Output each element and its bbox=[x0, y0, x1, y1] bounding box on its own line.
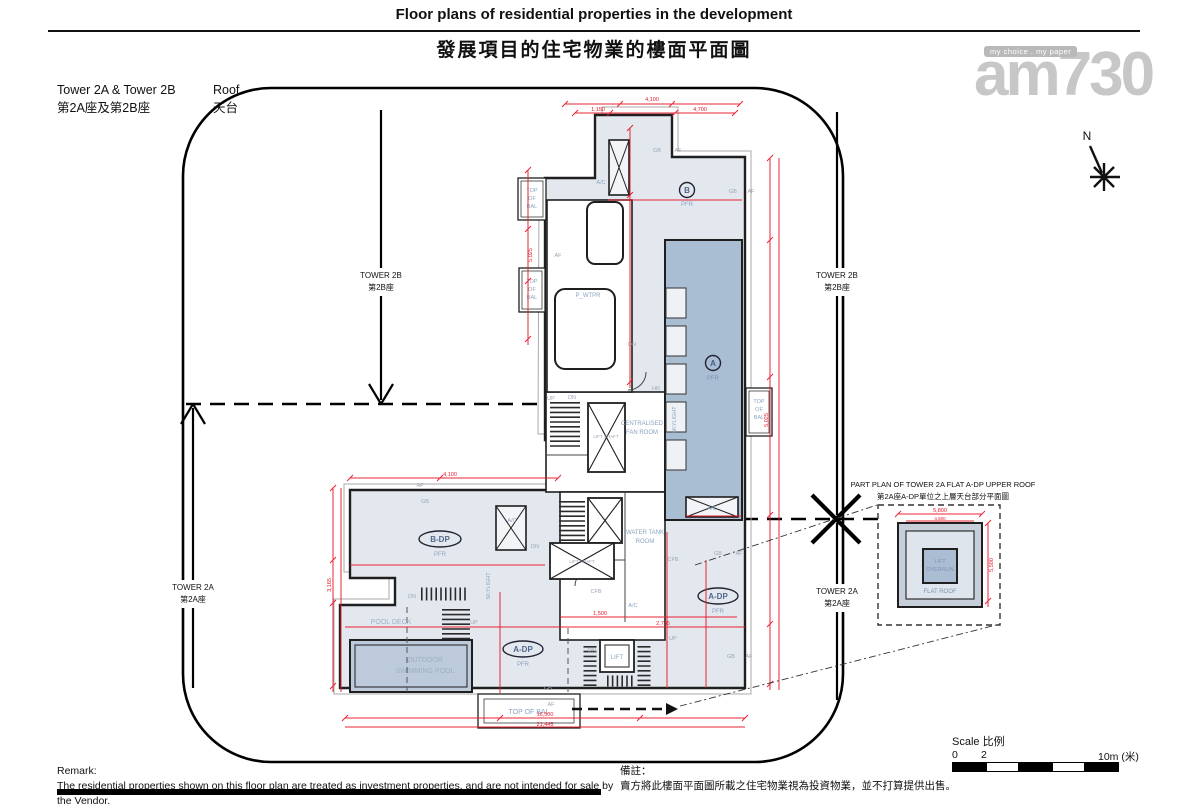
svg-text:AF: AF bbox=[735, 551, 743, 557]
svg-text:5,025: 5,025 bbox=[528, 248, 534, 262]
tower-2b-left-en: TOWER 2B bbox=[360, 271, 402, 280]
remark-en-title: Remark: bbox=[57, 764, 617, 779]
svg-text:OVERRUN: OVERRUN bbox=[926, 567, 954, 573]
svg-text:OF: OF bbox=[755, 407, 763, 413]
svg-text:SKYLIGHT: SKYLIGHT bbox=[672, 406, 678, 434]
svg-text:AF: AF bbox=[416, 483, 424, 489]
tower-2a-right-zh: 第2A座 bbox=[824, 598, 850, 608]
floor-plan-drawing: TOWER 2B 第2B座 TOWER 2B 第2B座 TOWER 2A 第2A… bbox=[0, 0, 1188, 795]
svg-text:DN: DN bbox=[408, 594, 416, 600]
svg-text:SKYLIGHT: SKYLIGHT bbox=[486, 572, 492, 600]
scale-ticks: 0 2 10m (米) bbox=[952, 749, 1152, 762]
svg-text:GB: GB bbox=[727, 654, 735, 660]
svg-text:GB: GB bbox=[421, 499, 429, 505]
svg-text:LIFT SHAFT: LIFT SHAFT bbox=[569, 559, 594, 564]
north-label: N bbox=[1083, 129, 1092, 143]
bottom-black-bar bbox=[57, 789, 601, 795]
svg-text:B-DP: B-DP bbox=[430, 535, 450, 544]
svg-text:P_WTPR: P_WTPR bbox=[575, 293, 601, 299]
svg-text:A-DP: A-DP bbox=[513, 645, 533, 654]
svg-text:CENTRALISED: CENTRALISED bbox=[621, 421, 664, 427]
tower-2a-right-en: TOWER 2A bbox=[816, 587, 858, 596]
tower-2a-left-en: TOWER 2A bbox=[172, 583, 214, 592]
remark-zh: 備註： 賣方將此樓面平面圖所載之住宅物業視為投資物業，並不打算提供出售。 bbox=[620, 764, 1140, 794]
skylight-boxes bbox=[666, 288, 686, 470]
svg-text:WATER TANK: WATER TANK bbox=[626, 530, 664, 536]
svg-text:DN: DN bbox=[568, 395, 576, 401]
svg-text:DN: DN bbox=[628, 342, 636, 348]
svg-text:OF: OF bbox=[528, 287, 536, 293]
tower-2a-left-zh: 第2A座 bbox=[180, 594, 206, 604]
remark-en: Remark: The residential properties shown… bbox=[57, 764, 617, 809]
svg-text:5,500: 5,500 bbox=[989, 558, 995, 572]
svg-text:SWIMMING POOL: SWIMMING POOL bbox=[396, 668, 455, 675]
svg-text:16,500: 16,500 bbox=[537, 712, 554, 718]
part-plan-title-en: PART PLAN OF TOWER 2A FLAT A-DP UPPER RO… bbox=[851, 480, 1036, 489]
svg-text:4,700: 4,700 bbox=[693, 107, 707, 113]
svg-text:21,445: 21,445 bbox=[537, 722, 554, 728]
svg-text:AF: AF bbox=[745, 654, 753, 660]
svg-text:3,165: 3,165 bbox=[327, 578, 333, 592]
svg-text:2,735: 2,735 bbox=[656, 621, 670, 627]
scale-label: Scale 比例 bbox=[952, 733, 1152, 749]
svg-text:UP: UP bbox=[547, 396, 555, 402]
svg-text:UP: UP bbox=[470, 620, 478, 626]
svg-text:A/C: A/C bbox=[507, 518, 516, 524]
svg-text:PFR: PFR bbox=[681, 202, 694, 208]
svg-text:CFB: CFB bbox=[668, 557, 679, 563]
svg-text:4,100: 4,100 bbox=[443, 472, 457, 478]
svg-text:FLAT ROOF: FLAT ROOF bbox=[923, 589, 956, 595]
svg-text:AF: AF bbox=[747, 189, 755, 195]
svg-text:PFR: PFR bbox=[712, 609, 725, 615]
svg-text:A/C: A/C bbox=[596, 180, 605, 186]
svg-text:CFB: CFB bbox=[591, 589, 602, 595]
svg-text:GB: GB bbox=[544, 686, 552, 692]
tower-2b-right-en: TOWER 2B bbox=[816, 271, 858, 280]
tower-2b-right-zh: 第2B座 bbox=[824, 282, 850, 292]
remark-zh-body: 賣方將此樓面平面圖所載之住宅物業視為投資物業，並不打算提供出售。 bbox=[620, 779, 1140, 794]
svg-text:A: A bbox=[710, 359, 716, 368]
scale-tick-2: 2 bbox=[981, 749, 987, 761]
svg-text:AF: AF bbox=[547, 702, 555, 708]
svg-text:4,100: 4,100 bbox=[645, 97, 659, 103]
svg-text:OUTDOOR: OUTDOOR bbox=[407, 657, 443, 664]
svg-text:A/C: A/C bbox=[628, 603, 637, 609]
north-compass: N bbox=[1083, 129, 1120, 191]
svg-text:OF: OF bbox=[528, 196, 536, 202]
svg-text:DN: DN bbox=[588, 648, 596, 654]
svg-text:GB: GB bbox=[714, 551, 722, 557]
svg-text:PFR: PFR bbox=[517, 662, 530, 668]
svg-text:TOP: TOP bbox=[753, 399, 765, 405]
svg-text:B: B bbox=[684, 186, 690, 195]
svg-text:UP: UP bbox=[669, 636, 677, 642]
svg-text:LIFT: LIFT bbox=[611, 655, 624, 661]
outdoor-pool bbox=[350, 640, 472, 692]
svg-text:1,500: 1,500 bbox=[593, 611, 607, 617]
scale-tick-0: 0 bbox=[952, 749, 958, 761]
svg-text:A/C: A/C bbox=[707, 506, 716, 512]
svg-text:AF: AF bbox=[554, 253, 562, 259]
tower-2b-left-zh: 第2B座 bbox=[368, 282, 394, 292]
svg-text:ROOM: ROOM bbox=[636, 539, 655, 545]
scale-tick-10: 10m (米) bbox=[1098, 749, 1139, 764]
svg-text:5,025: 5,025 bbox=[764, 413, 770, 427]
svg-text:A-DP: A-DP bbox=[708, 592, 728, 601]
svg-text:4,500: 4,500 bbox=[934, 516, 946, 521]
svg-text:HR: HR bbox=[652, 386, 660, 392]
svg-text:DN: DN bbox=[531, 544, 539, 550]
remark-zh-title: 備註： bbox=[620, 764, 1140, 779]
svg-text:5,800: 5,800 bbox=[933, 508, 947, 514]
svg-text:POOL DECK: POOL DECK bbox=[371, 619, 412, 626]
svg-text:FAN ROOM: FAN ROOM bbox=[626, 430, 658, 436]
svg-text:GB: GB bbox=[729, 189, 737, 195]
svg-text:GB: GB bbox=[653, 148, 661, 154]
svg-text:LIFT SHAFT: LIFT SHAFT bbox=[593, 434, 618, 439]
svg-text:LIFT: LIFT bbox=[934, 559, 946, 565]
svg-text:PFR: PFR bbox=[707, 376, 720, 382]
part-plan-title-zh: 第2A座A-DP單位之上層天台部分平面圖 bbox=[877, 491, 1009, 501]
svg-text:1,150: 1,150 bbox=[591, 107, 605, 113]
svg-text:PFR: PFR bbox=[434, 552, 447, 558]
svg-text:BAL: BAL bbox=[754, 415, 764, 421]
svg-text:AF: AF bbox=[674, 148, 682, 154]
